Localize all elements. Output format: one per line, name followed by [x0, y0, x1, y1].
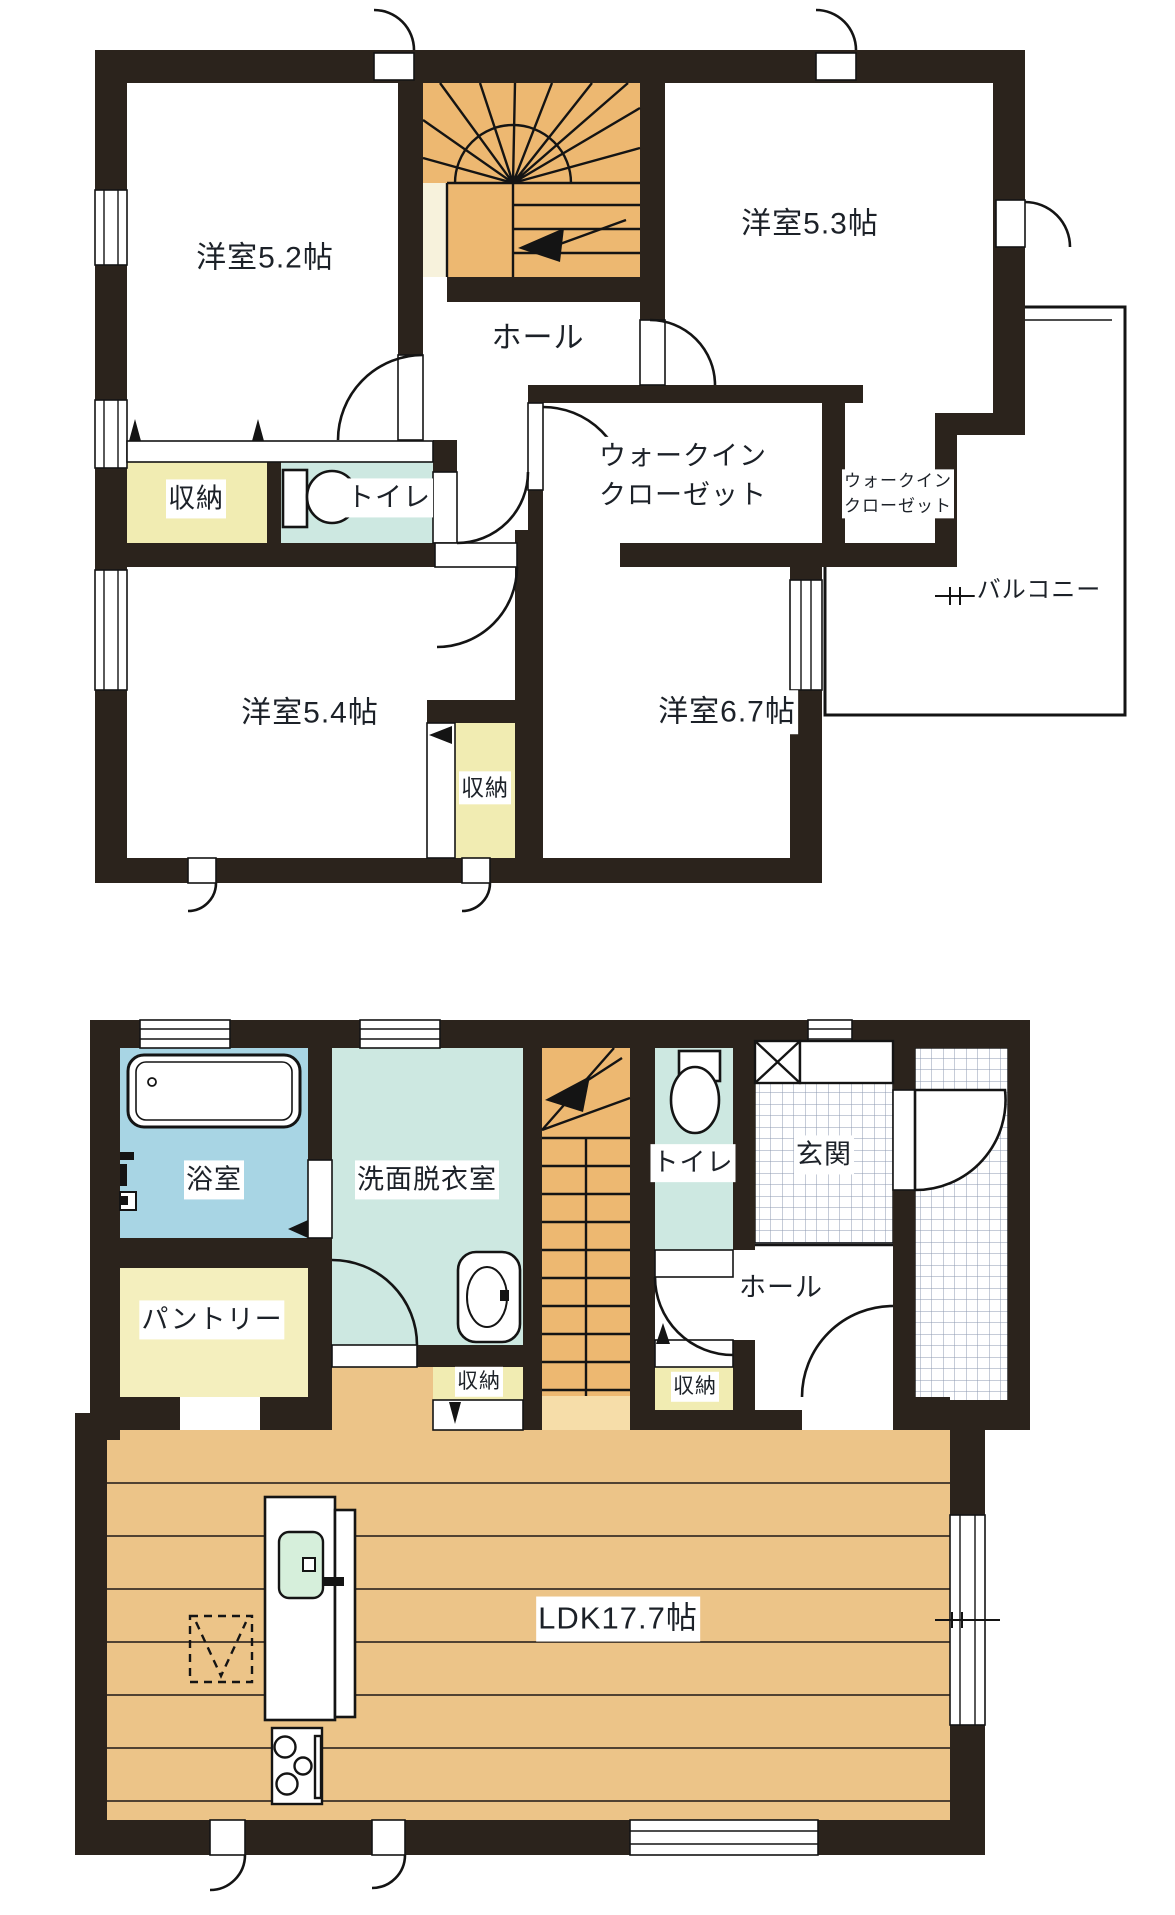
label-1f-entrance: 玄関: [794, 1135, 854, 1174]
shower-fixture-icon: [120, 1152, 134, 1160]
door-gap: [640, 320, 665, 385]
window: [360, 1020, 440, 1048]
label-2f-western-room-5-3: 洋室5.3帖: [739, 202, 881, 246]
window: [462, 858, 490, 883]
sliding-window: [790, 580, 822, 690]
label-2f-balcony: バルコニー: [975, 574, 1104, 609]
1f-ldk-tongue-floor: [332, 1367, 433, 1430]
label-2f-western-room-5-4: 洋室5.4帖: [239, 691, 381, 735]
1f-washbasin-icon: [458, 1252, 520, 1342]
kitchen-sink-icon: [279, 1532, 323, 1598]
door-gap: [433, 472, 457, 543]
door-gap: [332, 1345, 417, 1367]
door-leaf: [816, 53, 856, 80]
label-1f-ldk: LDK17.7帖: [536, 1597, 700, 1642]
1f-stove-icon: [272, 1728, 322, 1804]
label-2f-walkin-closet-small: ウォークイン クローゼット: [842, 469, 954, 518]
door-gap: [435, 543, 517, 567]
closet-front: [127, 441, 433, 462]
label-2f-western-room-6-7: 洋室6.7帖: [656, 690, 798, 734]
label-1f-washroom: 洗面脱衣室: [355, 1160, 499, 1199]
window: [188, 858, 216, 883]
window: [140, 1020, 230, 1048]
1f-toilet-icon: [671, 1051, 720, 1133]
window: [372, 1820, 405, 1855]
door-leaf: [374, 53, 414, 80]
door-gap: [528, 403, 543, 490]
window: [95, 570, 127, 690]
2f-staircase-landing: [423, 183, 447, 277]
1f-plan: [75, 1020, 1030, 1890]
label-2f-walkin-closet-large: ウォークイン クローゼット: [597, 437, 769, 515]
label-1f-storage-right: 収納: [671, 1372, 719, 1402]
label-1f-hall: ホール: [737, 1268, 825, 1307]
label-1f-bathroom: 浴室: [184, 1160, 244, 1199]
floor-plan-page: 洋室5.2帖 洋室5.3帖 ホール 収納 トイレ ウォークイン クローゼット ウ…: [0, 0, 1175, 1915]
front-door-leaf: [893, 1090, 915, 1190]
label-2f-toilet: トイレ: [345, 478, 433, 517]
bath-door: [308, 1160, 332, 1238]
label-2f-hall: ホール: [490, 316, 587, 360]
door-leaf: [996, 200, 1025, 247]
window: [630, 1820, 818, 1855]
sliding-door: [433, 1400, 523, 1430]
door-gap: [398, 355, 423, 440]
2f-room-fills: [127, 83, 640, 858]
label-1f-pantry: パントリー: [139, 1300, 284, 1339]
label-1f-storage-left: 収納: [455, 1367, 503, 1397]
window: [95, 400, 127, 468]
1f-kitchen-island: [265, 1497, 355, 1720]
1f-ldk-floor: [107, 1430, 950, 1820]
window: [210, 1820, 245, 1855]
label-2f-western-room-5-2: 洋室5.2帖: [194, 236, 336, 280]
label-2f-storage-bottom: 収納: [459, 771, 511, 804]
door-gap: [180, 1397, 260, 1430]
1f-stairs-bottom-fade: [542, 1396, 630, 1430]
label-1f-toilet: トイレ: [650, 1144, 735, 1182]
window: [95, 190, 127, 265]
door-gap: [655, 1250, 733, 1277]
label-2f-storage-left: 収納: [166, 479, 226, 518]
